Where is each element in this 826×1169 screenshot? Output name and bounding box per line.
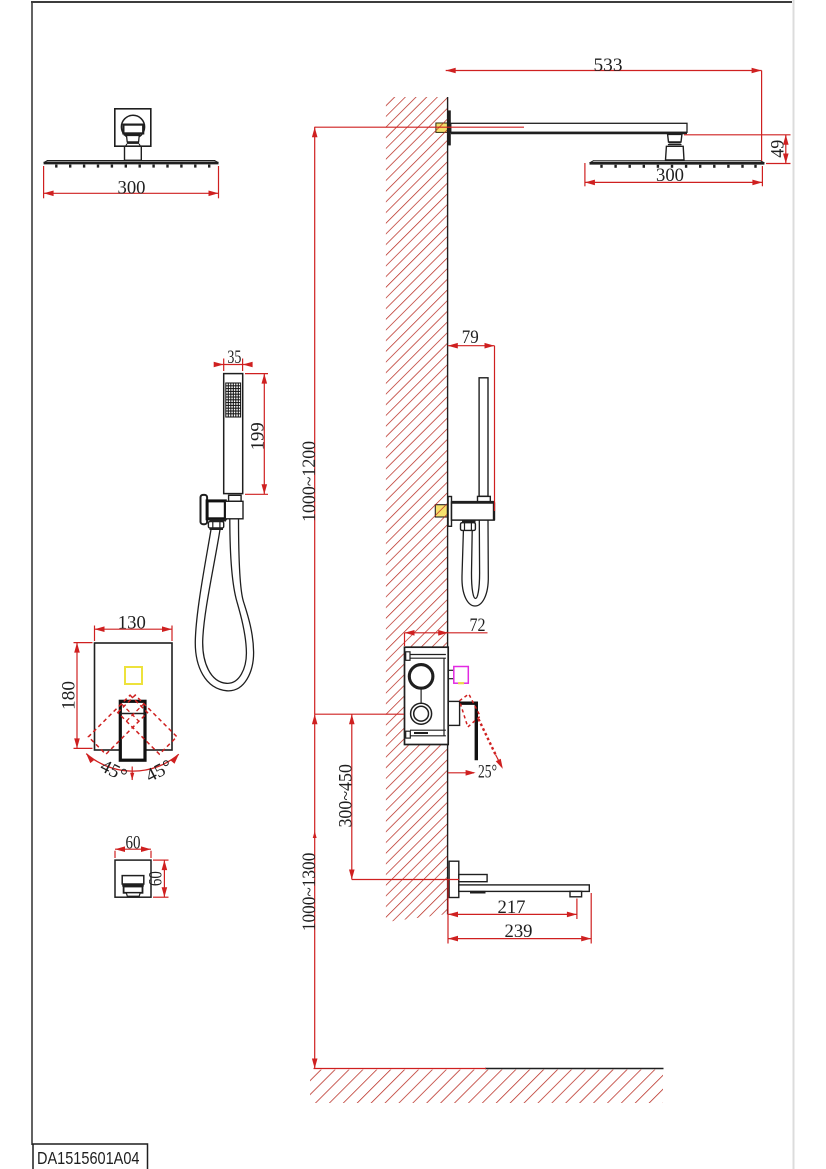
svg-text:25°: 25° (478, 761, 497, 782)
svg-text:180: 180 (58, 681, 79, 710)
svg-text:DA1515601A04: DA1515601A04 (37, 1148, 140, 1168)
svg-text:79: 79 (462, 327, 479, 348)
svg-text:217: 217 (498, 897, 526, 918)
svg-text:239: 239 (505, 921, 533, 942)
svg-text:300~450: 300~450 (336, 764, 357, 828)
svg-text:72: 72 (470, 615, 486, 636)
svg-text:35: 35 (227, 347, 241, 368)
svg-text:49: 49 (767, 140, 788, 158)
svg-text:60: 60 (146, 871, 167, 886)
svg-text:300: 300 (656, 165, 684, 186)
svg-text:300: 300 (118, 177, 146, 198)
svg-text:533: 533 (594, 55, 623, 76)
svg-text:60: 60 (126, 833, 141, 854)
svg-text:199: 199 (247, 422, 268, 450)
svg-text:130: 130 (118, 613, 146, 634)
svg-text:1000~1300: 1000~1300 (299, 853, 320, 932)
svg-text:1000~1200: 1000~1200 (299, 441, 320, 522)
